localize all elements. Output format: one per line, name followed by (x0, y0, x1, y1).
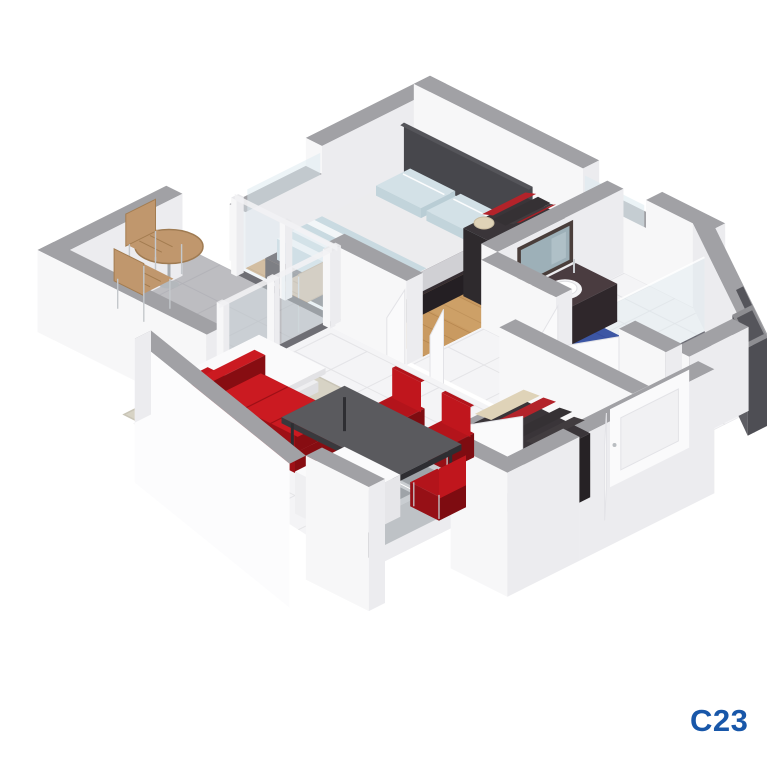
unit-label: C23 (690, 703, 748, 739)
apartment-3d-floorplan (0, 0, 767, 768)
floorplan-canvas: C23 (0, 0, 767, 768)
